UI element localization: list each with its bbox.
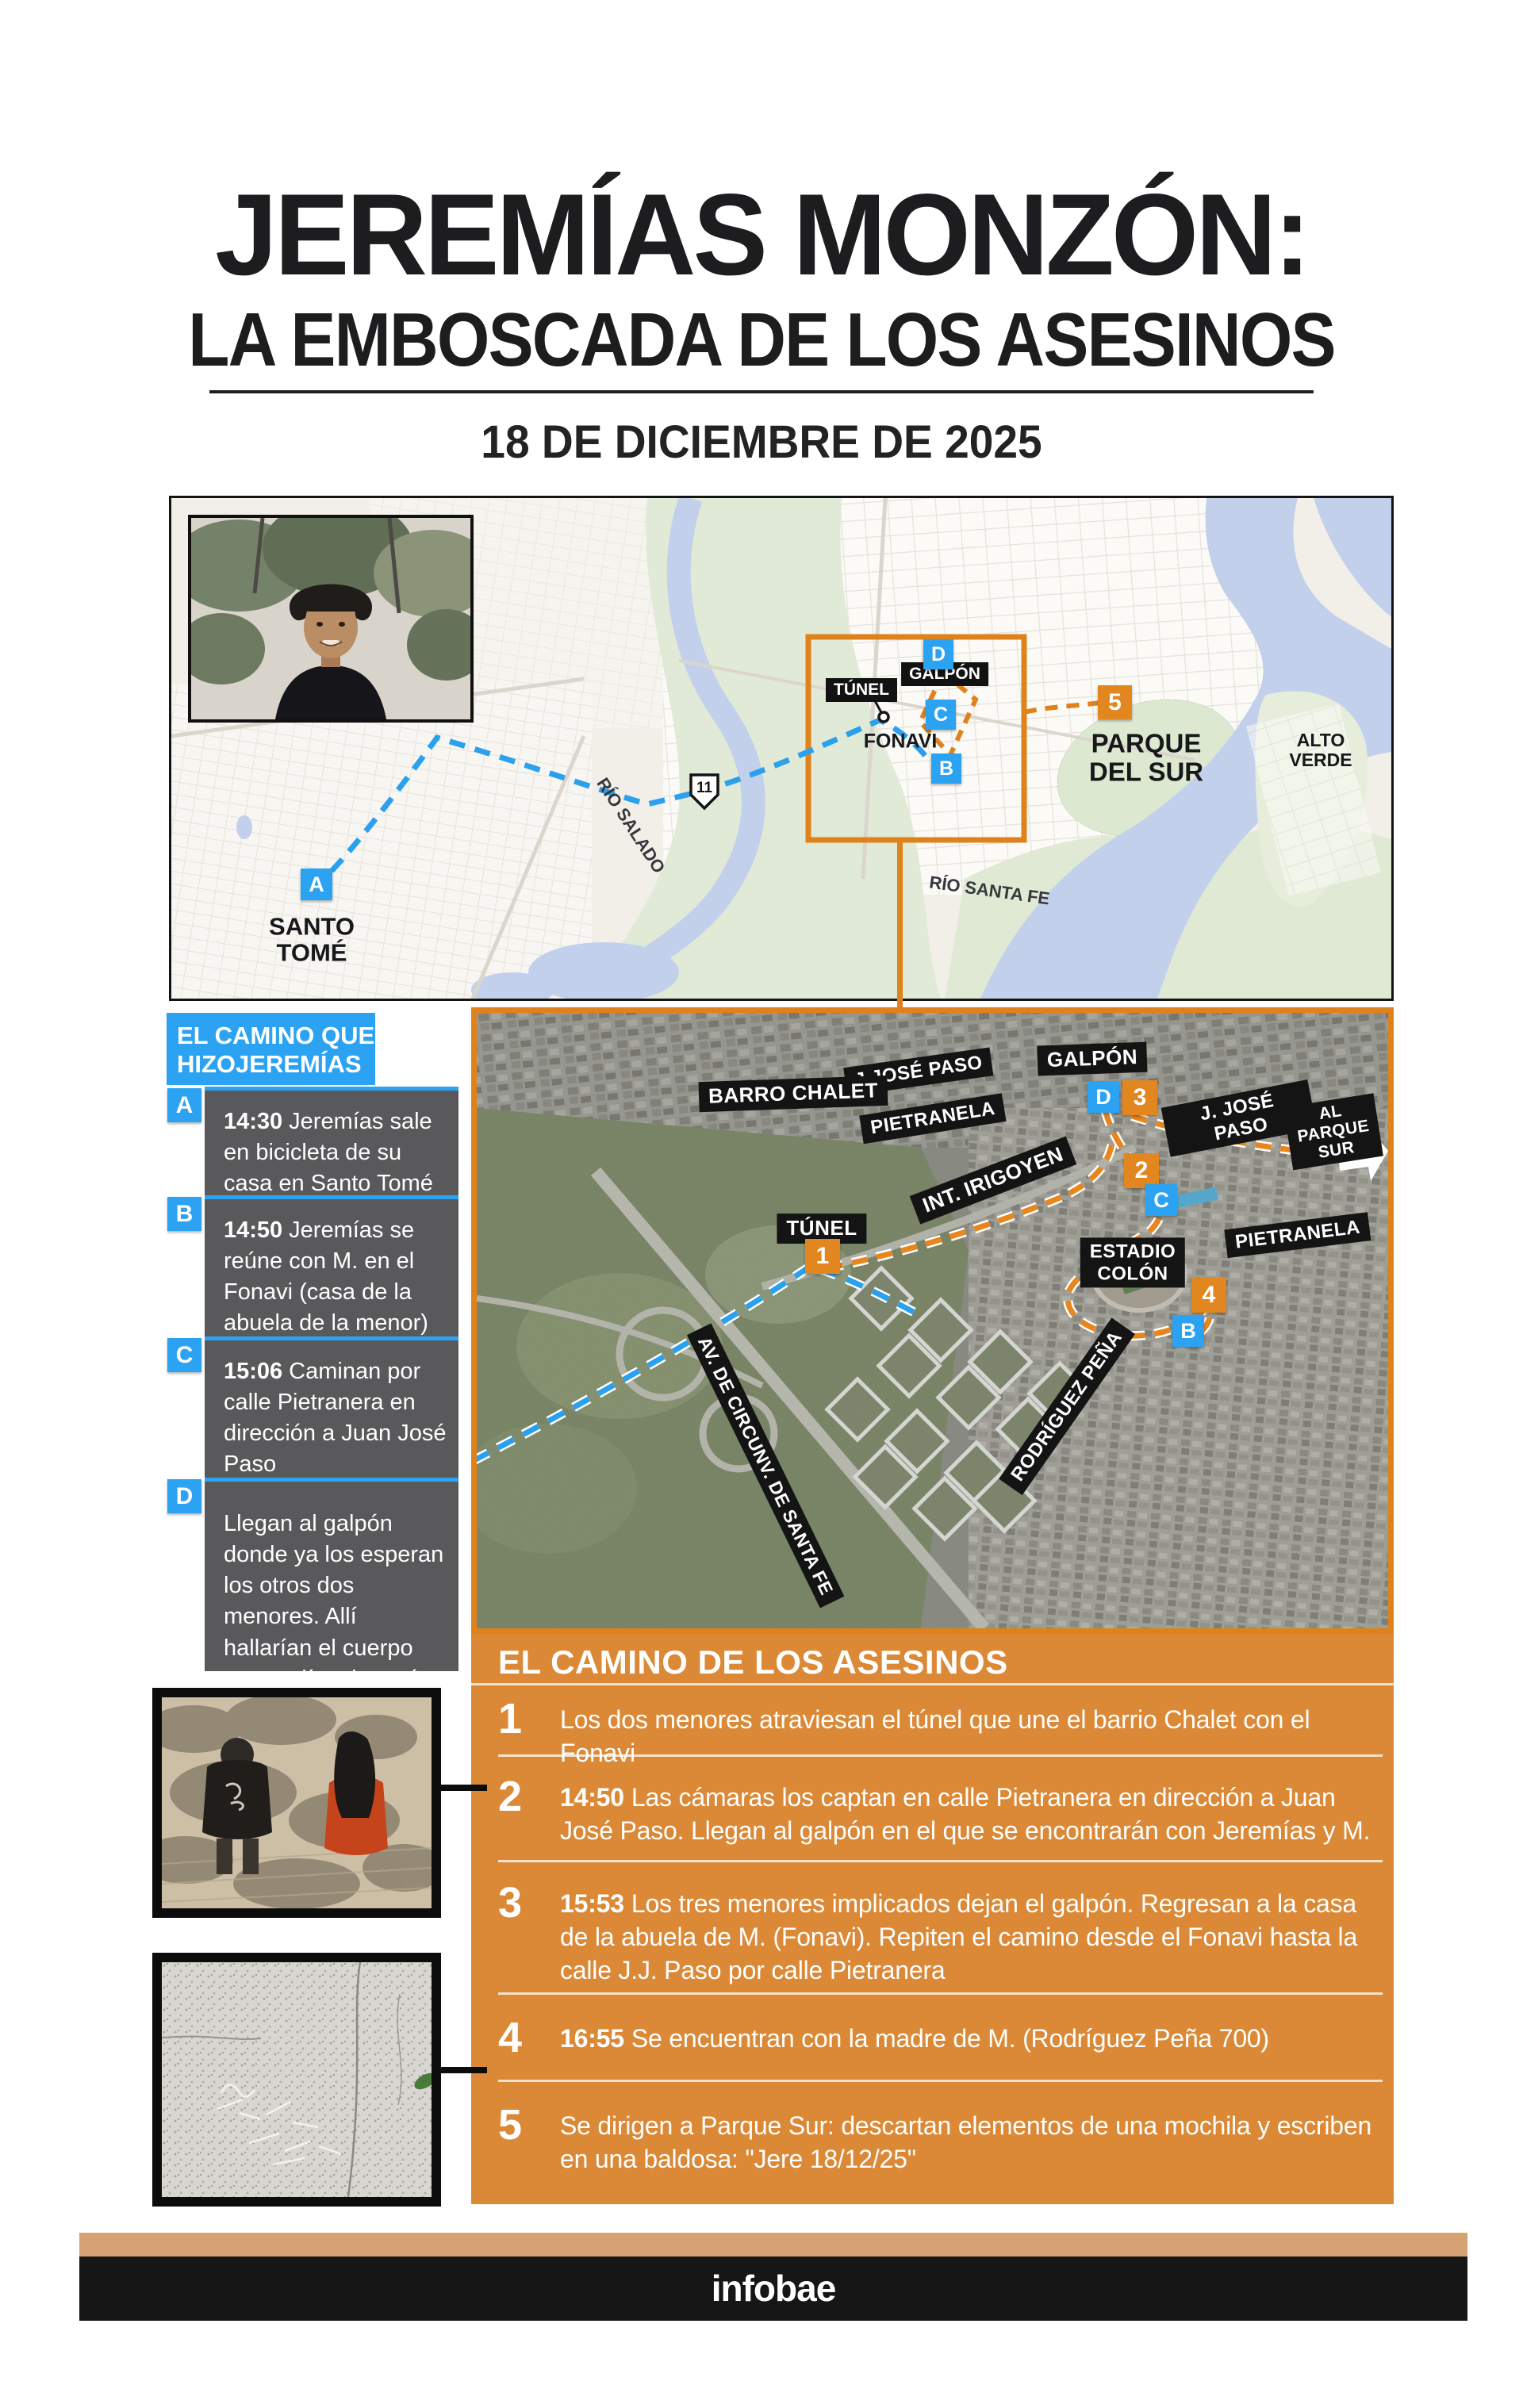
- marker-c-street: C: [926, 700, 956, 730]
- infobae-logo: infobae: [712, 2268, 836, 2309]
- victim-photo-art: [191, 518, 470, 719]
- victim-photo: [188, 515, 474, 723]
- title-divider: [209, 390, 1314, 393]
- sidebar-item-b: 14:50Jeremías se reúne con M. en el Fona…: [205, 1195, 458, 1336]
- killers-item-1: 1 Los dos menores atraviesan el túnel qu…: [498, 1697, 1373, 1770]
- sat-marker-1: 1: [805, 1239, 840, 1274]
- sat-marker-2: 2: [1124, 1153, 1159, 1188]
- killers-panel: EL CAMINO DE LOS ASESINOS 1 Los dos meno…: [471, 1634, 1394, 2204]
- label-fonavi: FONAVI: [864, 731, 938, 753]
- label-tunel: TÚNEL: [826, 678, 897, 702]
- photo2-connector-line: [435, 2067, 487, 2073]
- sidebar-header-line2: HIZOJEREMÍAS: [177, 1050, 375, 1079]
- killers-item-4-num: 4: [498, 2016, 539, 2059]
- page-title: JEREMÍAS MONZÓN:: [23, 168, 1500, 301]
- killers-item-3: 3 15:53Los tres menores implicados dejan…: [498, 1881, 1373, 1988]
- killers-item-5-text: Se dirigen a Parque Sur: descartan eleme…: [560, 2111, 1371, 2173]
- sidebar-letter-b: B: [167, 1197, 201, 1231]
- footer-tan-bar: [79, 2233, 1467, 2257]
- sidebar-header-line1: EL CAMINO QUE: [177, 1022, 375, 1050]
- killers-item-3-text: Los tres menores implicados dejan el gal…: [560, 1889, 1357, 1984]
- date-line: 18 DE DICIEMBRE DE 2025: [38, 416, 1485, 469]
- killers-item-3-num: 3: [498, 1881, 539, 1988]
- footer-bar: infobae: [79, 2257, 1467, 2321]
- sat-label-estadio-colon: ESTADIO COLÓN: [1080, 1237, 1185, 1287]
- divider: [498, 1860, 1383, 1862]
- divider: [498, 2080, 1383, 2082]
- sidebar-header: EL CAMINO QUE HIZOJEREMÍAS: [167, 1013, 375, 1085]
- label-santo-tome: SANTO TOMÉ: [269, 914, 355, 967]
- sat-marker-3: 3: [1122, 1080, 1157, 1115]
- sidebar-letter-c: C: [167, 1338, 201, 1372]
- killers-item-1-text: Los dos menores atraviesan el túnel que …: [560, 1705, 1310, 1767]
- killers-item-2: 2 14:50Las cámaras los captan en calle P…: [498, 1775, 1373, 1847]
- killers-item-1-num: 1: [498, 1697, 539, 1770]
- street-map: SANTO TOMÉ PARQUE DEL SUR ALTO VERDE RÍO…: [169, 496, 1394, 1001]
- killers-item-4-text: Se encuentran con la madre de M. (Rodríg…: [631, 2024, 1269, 2053]
- tile-photo-art: [162, 1962, 432, 2197]
- sidebar-item-a-time: 14:30: [224, 1109, 282, 1134]
- tile-photo: [152, 1953, 441, 2207]
- divider: [471, 1683, 1394, 1685]
- marker-a: A: [301, 868, 332, 900]
- killers-item-5-num: 5: [498, 2103, 539, 2176]
- marker-d-street: D: [923, 639, 953, 669]
- label-parque-del-sur: PARQUE DEL SUR: [1089, 729, 1203, 785]
- killers-item-2-num: 2: [498, 1775, 539, 1847]
- sidebar-item-b-time: 14:50: [224, 1217, 282, 1243]
- page-subtitle: LA EMBOSCADA DE LOS ASESINOS: [84, 297, 1440, 384]
- killers-item-5: 5 Se dirigen a Parque Sur: descartan ele…: [498, 2103, 1373, 2176]
- sidebar-item-a: 14:30Jeremías sale en bicicleta de su ca…: [205, 1087, 458, 1195]
- sidebar-item-c-time: 15:06: [224, 1359, 282, 1384]
- sat-marker-d: D: [1088, 1081, 1119, 1113]
- divider: [498, 1754, 1383, 1757]
- cctv-photo: [152, 1688, 441, 1918]
- killers-panel-header: EL CAMINO DE LOS ASESINOS: [498, 1643, 1008, 1681]
- sat-marker-4: 4: [1191, 1278, 1226, 1313]
- inset-connector-line: [897, 839, 903, 1010]
- route-11-shield-icon: 11: [689, 773, 720, 811]
- satellite-map: GALPÓN J.JOSÉ PASO BARRO CHALET PIETRANE…: [471, 1007, 1394, 1634]
- sat-marker-c: C: [1145, 1184, 1177, 1216]
- marker-b-street: B: [931, 753, 961, 784]
- sidebar-item-d-text: Llegan al galpón donde ya los esperan lo…: [224, 1511, 443, 1671]
- infographic-page: JEREMÍAS MONZÓN: LA EMBOSCADA DE LOS ASE…: [0, 0, 1523, 2408]
- sidebar-item-d: Llegan al galpón donde ya los esperan lo…: [205, 1478, 458, 1671]
- cctv-photo-art: [162, 1697, 432, 1908]
- sat-label-galpon: GALPÓN: [1037, 1042, 1147, 1076]
- sidebar-item-c: 15:06Caminan por calle Pietranera en dir…: [205, 1336, 458, 1478]
- sat-marker-b: B: [1172, 1315, 1204, 1347]
- photo1-connector-line: [435, 1785, 487, 1791]
- divider: [498, 1992, 1383, 1995]
- sidebar-letter-a: A: [167, 1088, 201, 1122]
- killers-item-4: 4 16:55Se encuentran con la madre de M. …: [498, 2016, 1373, 2059]
- killers-item-2-text: Las cámaras los captan en calle Pietrane…: [560, 1783, 1370, 1845]
- marker-5-street: 5: [1098, 685, 1132, 719]
- sidebar-letter-d: D: [167, 1479, 201, 1513]
- svg-text:11: 11: [696, 780, 713, 796]
- label-alto-verde: ALTO VERDE: [1289, 730, 1352, 770]
